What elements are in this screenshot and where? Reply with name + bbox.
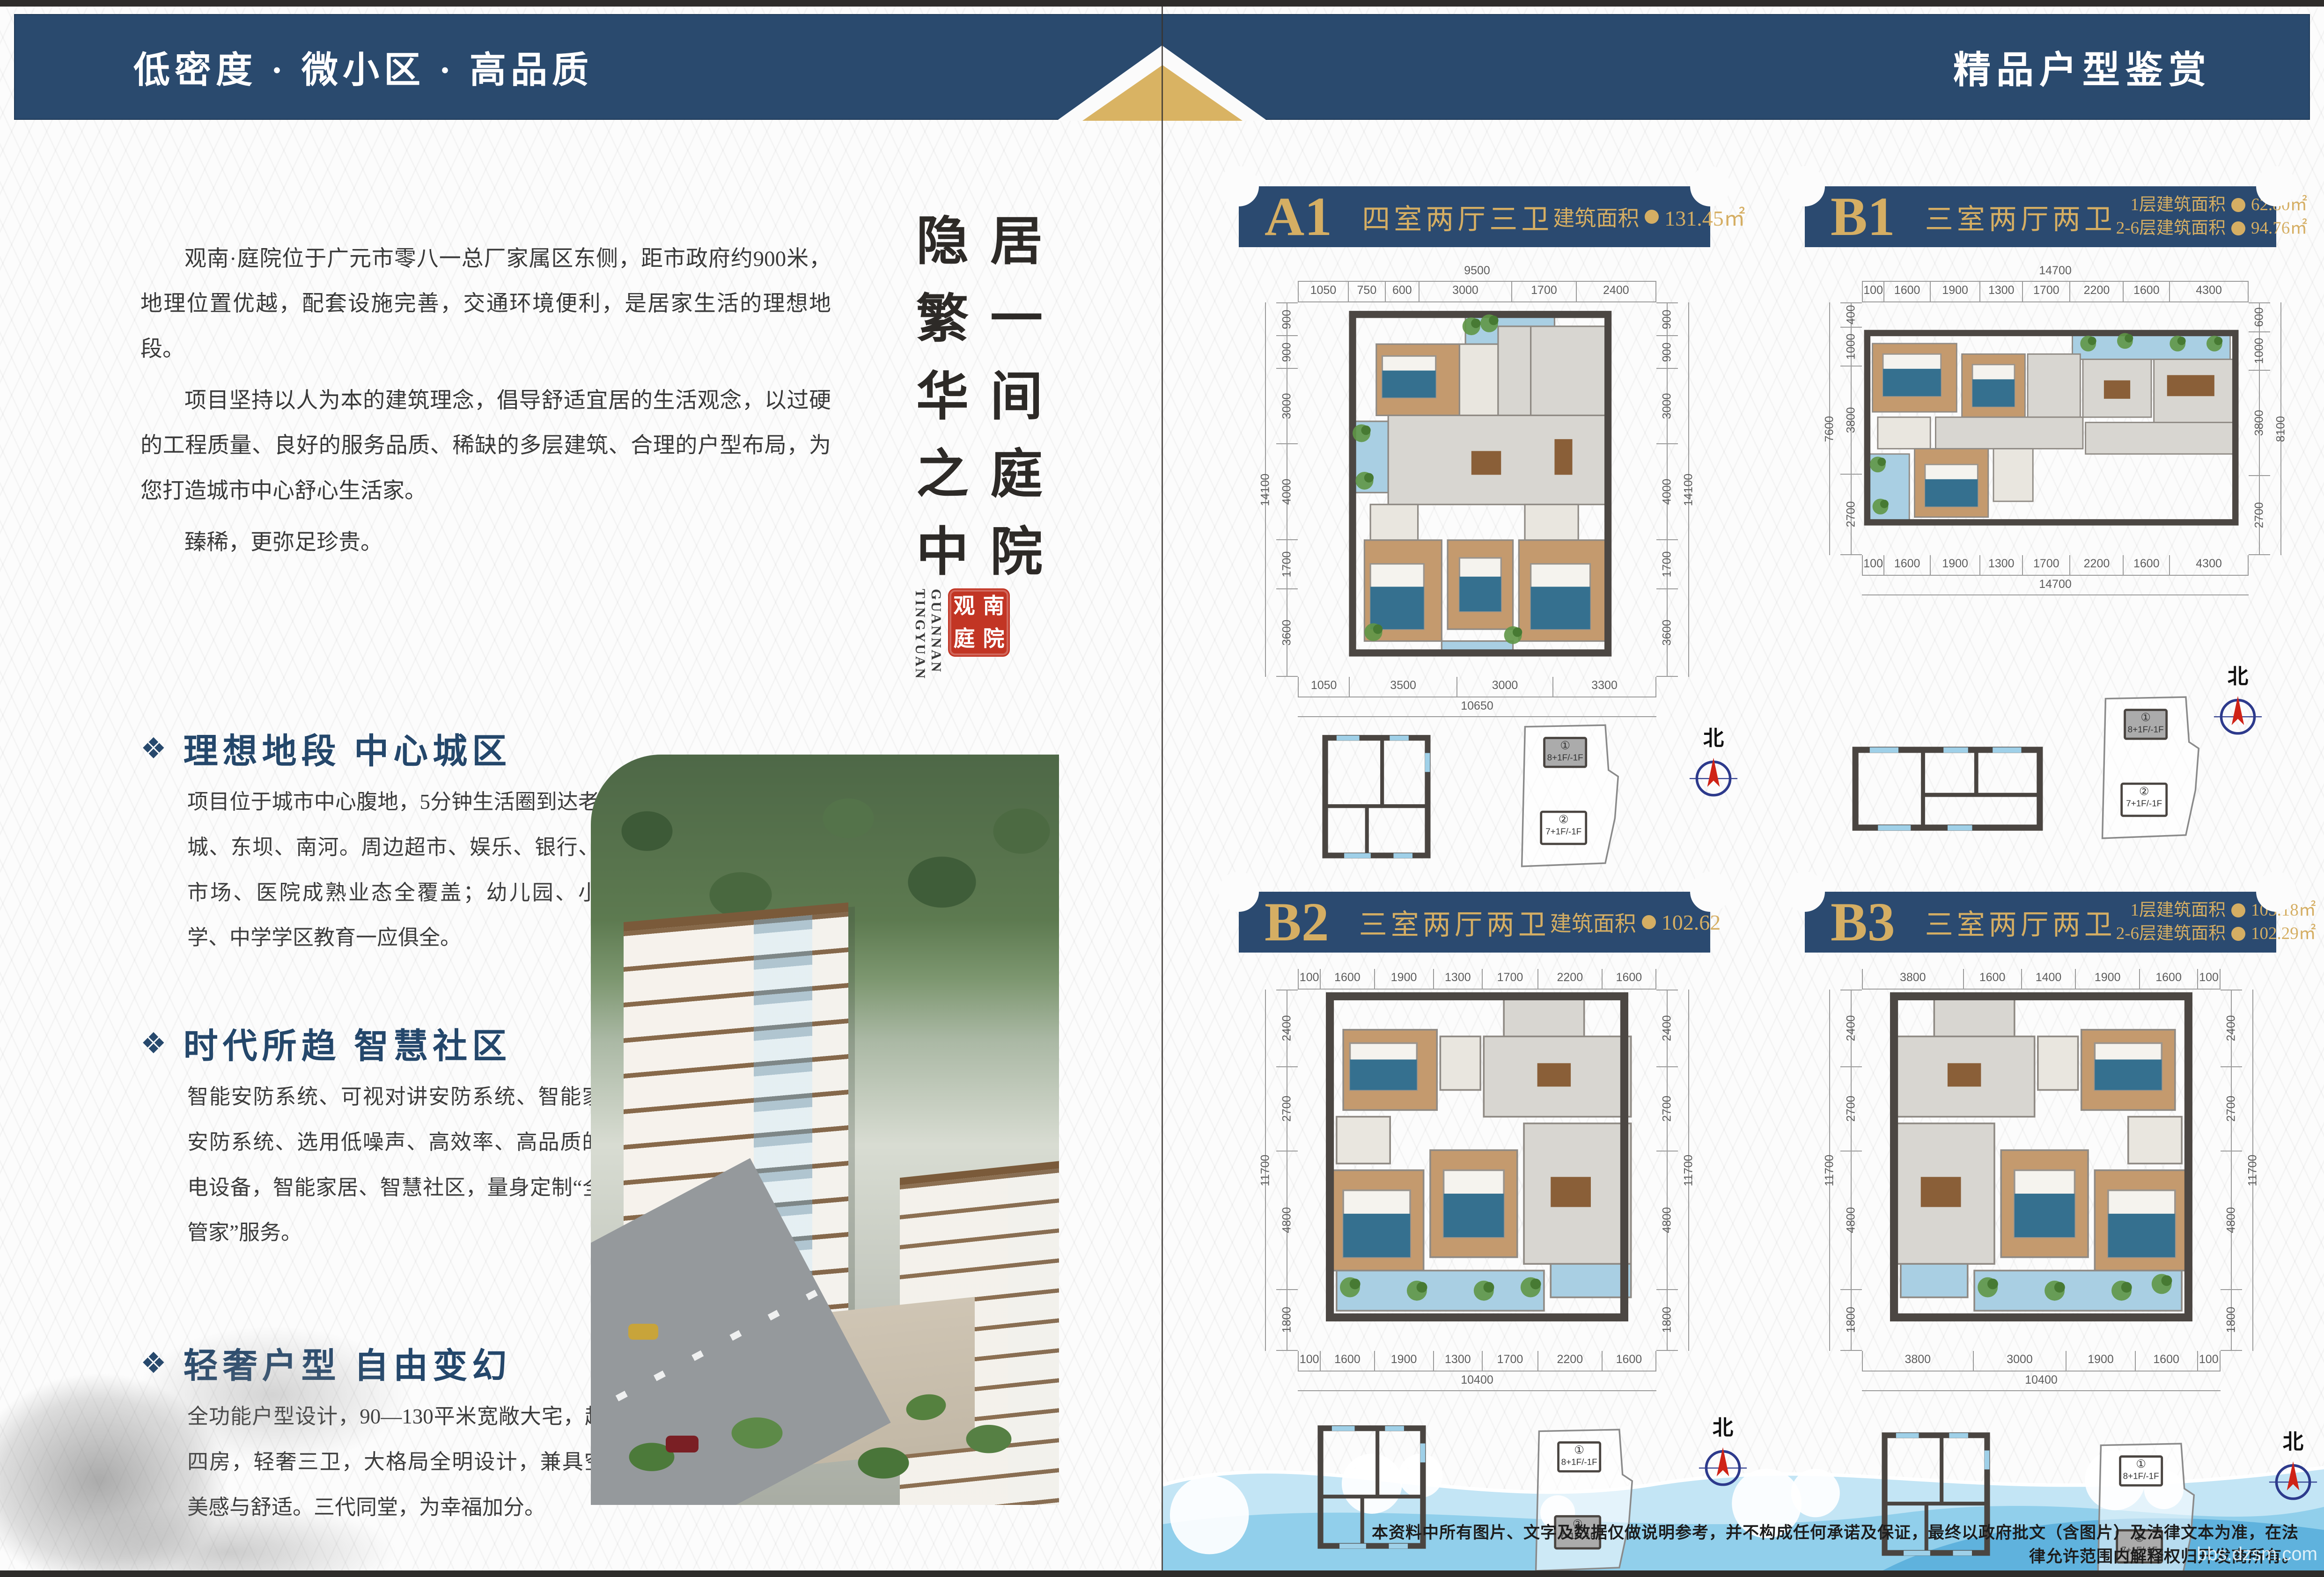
area-label: 建筑面积	[1553, 201, 1639, 232]
section-1-title: ❖ 理想地段 中心城区	[140, 723, 511, 773]
north-compass-b2: 北	[1695, 1416, 1751, 1502]
dim-label: 600	[1392, 284, 1412, 297]
area-value: 131.45㎡	[1664, 201, 1745, 232]
svg-text:7+1F/-1F: 7+1F/-1F	[2126, 798, 2162, 808]
dim-label: 1600	[2153, 1353, 2179, 1366]
svg-text:8+1F/-1F: 8+1F/-1F	[2128, 725, 2164, 734]
left-header-slogan: 低密度 · 微小区 · 高品质	[133, 14, 593, 120]
dim-label: 1900	[2095, 971, 2121, 984]
dimension-total: 10400	[1298, 1372, 1656, 1391]
dim-label: 2700	[2253, 502, 2266, 528]
dimension-total: 14100	[1255, 302, 1276, 677]
plan-code: B3	[1831, 895, 1895, 950]
dim-label: 1300	[1988, 284, 2015, 297]
floor-plan-drawing-b1	[1862, 323, 2249, 535]
dim-label: 1300	[1988, 557, 2015, 571]
dim-label: 2700	[1661, 1096, 1674, 1122]
dim-label: 900	[1280, 309, 1294, 329]
dim-label: 1700	[1497, 1353, 1523, 1366]
dim-label: 2400	[1661, 1015, 1674, 1042]
dim-label: 1900	[1391, 971, 1417, 984]
svg-text:①: ①	[2136, 1459, 2146, 1471]
dimension-ruler: 100160019001300170022001600	[1298, 969, 1656, 990]
svg-text:8+1F/-1F: 8+1F/-1F	[1561, 1457, 1597, 1467]
dim-label: 1700	[1497, 971, 1523, 984]
dim-label: 2200	[2084, 284, 2110, 297]
dim-label: 3500	[1390, 679, 1416, 692]
dim-label: 10650	[1461, 699, 1493, 713]
dim-label: 2400	[1603, 284, 1629, 297]
plan-plate-b1: B1 三室两厅两卫 1层建筑面积62.80㎡2-6层建筑面积94.76㎡	[1805, 186, 2276, 247]
dim-label: 600	[2253, 308, 2266, 327]
plan-type: 四室两厅三卫	[1362, 197, 1553, 237]
dimension-total: 10650	[1298, 697, 1656, 717]
floor-plan-drawing-a1	[1335, 302, 1620, 677]
rendering-car-yellow	[628, 1324, 658, 1340]
outline-miniplan-a1	[1306, 730, 1447, 873]
dim-label: 11700	[1259, 1154, 1272, 1186]
plate-corner-notch	[1219, 166, 1259, 206]
area-value: 102.29㎡	[2251, 922, 2316, 946]
dim-label: 900	[1661, 342, 1674, 362]
dim-label: 1900	[1942, 557, 1968, 571]
dim-label: 2700	[1845, 501, 1858, 528]
dim-label: 1050	[1311, 679, 1337, 692]
dim-label: 11700	[1823, 1154, 1837, 1186]
dim-label: 1600	[1894, 284, 1920, 297]
dimension-ruler: 600100038002700	[2249, 302, 2270, 555]
vertical-calligraphy: 居一间庭院 隐繁华之中	[890, 213, 1037, 742]
outline-plan-drawing	[1306, 730, 1447, 871]
dim-label: 2700	[2225, 1096, 2238, 1122]
dim-label: 2700	[1845, 1096, 1858, 1122]
area-label: 1层建筑面积	[2131, 193, 2226, 217]
dimension-ruler: 2400270048001800	[1840, 990, 1862, 1351]
svg-text:①: ①	[1574, 1445, 1584, 1457]
dim-label: 1700	[1661, 551, 1674, 578]
dim-label: 14100	[1682, 473, 1696, 506]
plate-corner-notch	[2256, 166, 2296, 206]
dimension-ruler: 2400270048001800	[1656, 990, 1678, 1351]
plan-type: 三室两厅两卫	[1925, 197, 2116, 237]
svg-text:①: ①	[1560, 740, 1570, 752]
section-2-body: 智能安防系统、可视对讲安防系统、智能家居安防系统、选用低噪声、高效率、高品质的机…	[187, 1074, 625, 1255]
dim-label: 1600	[2155, 971, 2182, 984]
north-compass-drawing: 北	[2210, 665, 2266, 748]
dim-label: 11700	[1682, 1154, 1696, 1186]
svg-text:8+1F/-1F: 8+1F/-1F	[1547, 753, 1583, 763]
dim-label: 4800	[1280, 1207, 1294, 1233]
section-1-heading: 理想地段 中心城区	[184, 723, 512, 773]
page-gutter-line	[1162, 0, 1163, 1577]
dim-label: 1700	[2033, 557, 2059, 571]
svg-text:北: 北	[1703, 726, 1724, 750]
dim-label: 1800	[1661, 1307, 1674, 1333]
rendering-car-red	[666, 1436, 699, 1452]
dim-label: 3000	[1452, 284, 1478, 297]
area-label: 2-6层建筑面积	[2116, 217, 2226, 240]
plan-plate-b3: B3 三室两厅两卫 1层建筑面积105.18㎡2-6层建筑面积102.29㎡	[1805, 892, 2276, 953]
dimension-total: 14700	[1862, 262, 2249, 282]
plan-type: 三室两厅两卫	[1359, 902, 1550, 943]
dimension-ruler: 1050350030003300	[1298, 677, 1656, 697]
dim-label: 4000	[1661, 479, 1674, 505]
north-compass-drawing: 北	[1695, 1416, 1751, 1499]
dim-label: 2700	[1280, 1096, 1294, 1122]
dim-label: 4300	[2196, 557, 2222, 571]
intro-paragraphs: 观南·庭院位于广元市零八一总厂家属区东侧，距市政府约900米，地理位置优越，配套…	[140, 236, 831, 572]
dimension-ruler: 1050750600300017002400	[1298, 282, 1656, 302]
plate-corner-notch	[1690, 166, 1730, 206]
floor-plan-figure-b2: 1001600190013001700220016001170024002700…	[1255, 969, 1699, 1391]
dimension-total: 7600	[1819, 302, 1840, 555]
dim-label: 100	[1300, 1353, 1319, 1366]
svg-text:北: 北	[2283, 1430, 2303, 1453]
dim-label: 400	[1845, 305, 1858, 325]
dim-label: 4300	[2196, 284, 2222, 297]
area-label: 建筑面积	[1550, 907, 1636, 938]
right-header-title: 精品户型鉴赏	[1953, 14, 2212, 120]
dimension-ruler: 2400270048001800	[1276, 990, 1298, 1351]
floor-plan-drawing-b2	[1316, 990, 1638, 1351]
floor-plan-figure-b3: 3800160014001900160010011700240027004800…	[1819, 969, 2264, 1391]
dimension-ruler: 400100038002700	[1840, 302, 1862, 555]
dim-label: 4800	[1845, 1207, 1858, 1233]
dim-label: 3800	[1845, 407, 1858, 433]
dim-label: 4000	[1280, 479, 1294, 505]
plate-corner-notch	[2256, 872, 2296, 912]
plan-type: 三室两厅两卫	[1925, 902, 2116, 943]
dim-label: 900	[1661, 309, 1674, 329]
dim-label: 1800	[1280, 1307, 1294, 1333]
dim-label: 1800	[1845, 1307, 1858, 1333]
building-rendering-image	[591, 755, 1059, 1505]
north-compass-b1: 北	[2210, 665, 2266, 750]
area-seal-icon	[2231, 198, 2245, 212]
bottom-edge-strip	[0, 1570, 2324, 1577]
dimension-total: 11700	[1819, 990, 1840, 1351]
plate-corner-notch	[1690, 872, 1730, 912]
dimension-total: 10400	[1862, 1372, 2221, 1391]
dim-label: 100	[2199, 1353, 2219, 1366]
north-compass-drawing: 北	[1685, 726, 1742, 810]
dim-label: 4800	[1661, 1207, 1674, 1233]
dim-label: 1000	[2253, 338, 2266, 364]
calligraphy-column-right: 居一间庭院	[985, 213, 1037, 742]
dimension-total: 11700	[1678, 990, 1699, 1351]
plate-corner-notch	[1219, 872, 1259, 912]
dim-label: 3600	[1280, 620, 1294, 646]
dimension-ruler: 9009003000400017003600	[1276, 302, 1298, 677]
area-seal-icon	[1645, 210, 1659, 224]
dim-label: 10400	[2025, 1373, 2058, 1387]
dimension-total: 11700	[2242, 990, 2264, 1351]
svg-text:8+1F/-1F: 8+1F/-1F	[2123, 1471, 2159, 1481]
intro-paragraph-3: 臻稀，更弥足珍贵。	[140, 520, 831, 565]
plan-area-row: 建筑面积131.45㎡	[1553, 201, 1745, 232]
dimension-ruler: 2400270048001800	[2221, 990, 2242, 1351]
knot-icon: ❖	[140, 1026, 167, 1060]
dim-label: 2400	[1280, 1015, 1294, 1042]
plate-corner-notch	[1785, 166, 1825, 206]
dim-label: 2200	[2084, 557, 2110, 571]
dim-label: 1000	[1845, 334, 1858, 360]
plate-corner-notch	[1785, 872, 1825, 912]
dim-label: 750	[1357, 284, 1377, 297]
dim-label: 1600	[1334, 1353, 1361, 1366]
dim-label: 100	[2199, 971, 2219, 984]
dim-label: 1600	[1616, 1353, 1642, 1366]
dimension-total: 8100	[2270, 302, 2292, 555]
area-value: 102.62	[1662, 910, 1721, 935]
dim-label: 100	[1863, 284, 1883, 297]
dim-label: 2400	[1845, 1015, 1858, 1042]
north-compass-b3: 北	[2265, 1430, 2321, 1516]
dim-label: 14700	[2039, 578, 2072, 591]
dim-label: 1700	[1531, 284, 1557, 297]
dim-label: 1600	[1979, 971, 2006, 984]
dimension-total: 9500	[1298, 262, 1656, 282]
dim-label: 1600	[2133, 284, 2160, 297]
plan-code: B2	[1265, 895, 1329, 950]
dim-label: 900	[1280, 342, 1294, 362]
area-value: 94.76㎡	[2251, 217, 2307, 240]
intro-paragraph-2: 项目坚持以人为本的建筑理念，倡导舒适宜居的生活观念，以过硬的工程质量、良好的服务…	[140, 378, 831, 513]
dim-label: 11700	[2246, 1154, 2260, 1186]
dimension-total: 14100	[1678, 302, 1699, 677]
outline-plan-drawing	[1849, 730, 2046, 847]
site-keyplan-a1: ①8+1F/-1F②7+1F/-1F	[1512, 721, 1625, 873]
dim-label: 4800	[2225, 1207, 2238, 1233]
top-edge-strip	[0, 0, 2324, 7]
dim-label: 1900	[2088, 1353, 2114, 1366]
dim-label: 14100	[1259, 473, 1272, 506]
dimension-total: 11700	[1255, 990, 1276, 1351]
area-seal-icon	[2231, 903, 2245, 917]
knot-icon: ❖	[140, 731, 167, 765]
plan-area-row: 2-6层建筑面积94.76㎡	[2116, 217, 2308, 240]
svg-text:②: ②	[2139, 785, 2149, 798]
dim-label: 3300	[1591, 679, 1618, 692]
plan-area-row: 建筑面积102.62	[1550, 907, 1721, 938]
dim-label: 3600	[1661, 620, 1674, 646]
svg-text:北: 北	[2228, 665, 2248, 688]
dim-label: 1900	[1391, 1353, 1417, 1366]
dim-label: 100	[1300, 971, 1319, 984]
dim-label: 1900	[1942, 284, 1968, 297]
calligraphy-column-left: 隐繁华之中	[911, 213, 963, 742]
site-keyplan-b1: ①8+1F/-1F②7+1F/-1F	[2093, 693, 2205, 845]
plan-areas: 建筑面积102.62	[1550, 907, 1721, 938]
dimension-ruler: 9009003000400017003600	[1656, 302, 1678, 677]
dim-label: 1050	[1310, 284, 1337, 297]
site-keyplan-drawing: ①8+1F/-1F②7+1F/-1F	[1512, 721, 1625, 871]
dim-label: 3800	[1905, 1353, 1931, 1366]
dim-label: 1300	[1445, 1353, 1471, 1366]
site-keyplan-drawing: ①8+1F/-1F②7+1F/-1F	[2093, 693, 2205, 843]
plan-code: B1	[1831, 189, 1895, 244]
svg-text:7+1F/-1F: 7+1F/-1F	[1545, 826, 1581, 836]
floor-plan-figure-b1: 1470010016001900130017002200160043007600…	[1819, 262, 2292, 595]
dim-label: 9500	[1464, 264, 1490, 278]
svg-text:北: 北	[1713, 1416, 1733, 1439]
intro-paragraph-1: 观南·庭院位于广元市零八一总厂家属区东侧，距市政府约900米，地理位置优越，配套…	[140, 236, 831, 372]
svg-text:①: ①	[2140, 712, 2151, 724]
dimension-ruler: 3800300019001600100	[1862, 1351, 2221, 1372]
dim-label: 1600	[1616, 971, 1642, 984]
svg-text:②: ②	[1559, 814, 1569, 826]
area-label: 1层建筑面积	[2131, 899, 2226, 922]
dim-label: 100	[1863, 557, 1883, 571]
dim-label: 14700	[2039, 264, 2072, 278]
dim-label: 1300	[1445, 971, 1471, 984]
dim-label: 1400	[2036, 971, 2062, 984]
dimension-ruler: 100160019001300170022001600	[1298, 1351, 1656, 1372]
plan-code: A1	[1265, 189, 1332, 244]
area-label: 2-6层建筑面积	[2116, 922, 2226, 946]
brochure-spread: 低密度 · 微小区 · 高品质 精品户型鉴赏 观南·庭院位于广元市零八一总厂家属…	[0, 0, 2324, 1577]
dim-label: 8100	[2274, 416, 2288, 442]
dim-label: 3000	[2007, 1353, 2033, 1366]
dim-label: 1700	[2033, 284, 2059, 297]
plan-area-row: 2-6层建筑面积102.29㎡	[2116, 922, 2316, 946]
dim-label: 3800	[1900, 971, 1926, 984]
dimension-ruler: 38001600140019001600100	[1862, 969, 2221, 990]
north-compass-drawing: 北	[2265, 1430, 2321, 1513]
plan-plate-b2: B2 三室两厅两卫 建筑面积102.62	[1239, 892, 1710, 953]
dim-label: 1600	[1894, 557, 1920, 571]
dim-label: 3000	[1492, 679, 1518, 692]
dimension-ruler: 1001600190013001700220016004300	[1862, 555, 2249, 576]
dim-label: 3800	[2253, 410, 2266, 436]
dim-label: 2200	[1557, 1353, 1583, 1366]
floor-plan-figure-a1: 9500105075060030001700240014100900900300…	[1255, 262, 1699, 717]
section-2-heading: 时代所趋 智慧社区	[184, 1018, 512, 1068]
outline-miniplan-b1	[1849, 730, 2046, 850]
dim-label: 1800	[2225, 1307, 2238, 1333]
dim-label: 2400	[2225, 1015, 2238, 1042]
area-seal-icon	[2231, 221, 2245, 235]
dim-label: 3000	[1661, 393, 1674, 419]
plan-areas: 建筑面积131.45㎡	[1553, 201, 1745, 232]
dim-label: 1700	[1280, 551, 1294, 578]
dimension-total: 14700	[1862, 576, 2249, 595]
dimension-ruler: 1001600190013001700220016004300	[1862, 282, 2249, 302]
dim-label: 10400	[1461, 1373, 1493, 1387]
ink-cloud-art	[0, 1297, 468, 1577]
north-compass-a1: 北	[1685, 726, 1742, 812]
floor-plan-drawing-b3	[1881, 990, 2202, 1351]
area-seal-icon	[2231, 927, 2245, 941]
dim-label: 7600	[1823, 416, 1837, 442]
section-1-body: 项目位于城市中心腹地，5分钟生活圈到达老城、东坝、南河。周边超市、娱乐、银行、市…	[187, 779, 599, 961]
plan-plate-a1: A1 四室两厅三卫 建筑面积131.45㎡	[1239, 186, 1710, 247]
section-2-title: ❖ 时代所趋 智慧社区	[140, 1018, 511, 1068]
dim-label: 1600	[1334, 971, 1361, 984]
area-seal-icon	[1642, 915, 1656, 929]
watermark-text: bbs.dzsm.com	[2158, 1544, 2317, 1565]
dim-label: 2200	[1557, 971, 1583, 984]
dim-label: 3000	[1280, 393, 1294, 419]
dim-label: 1600	[2133, 557, 2160, 571]
